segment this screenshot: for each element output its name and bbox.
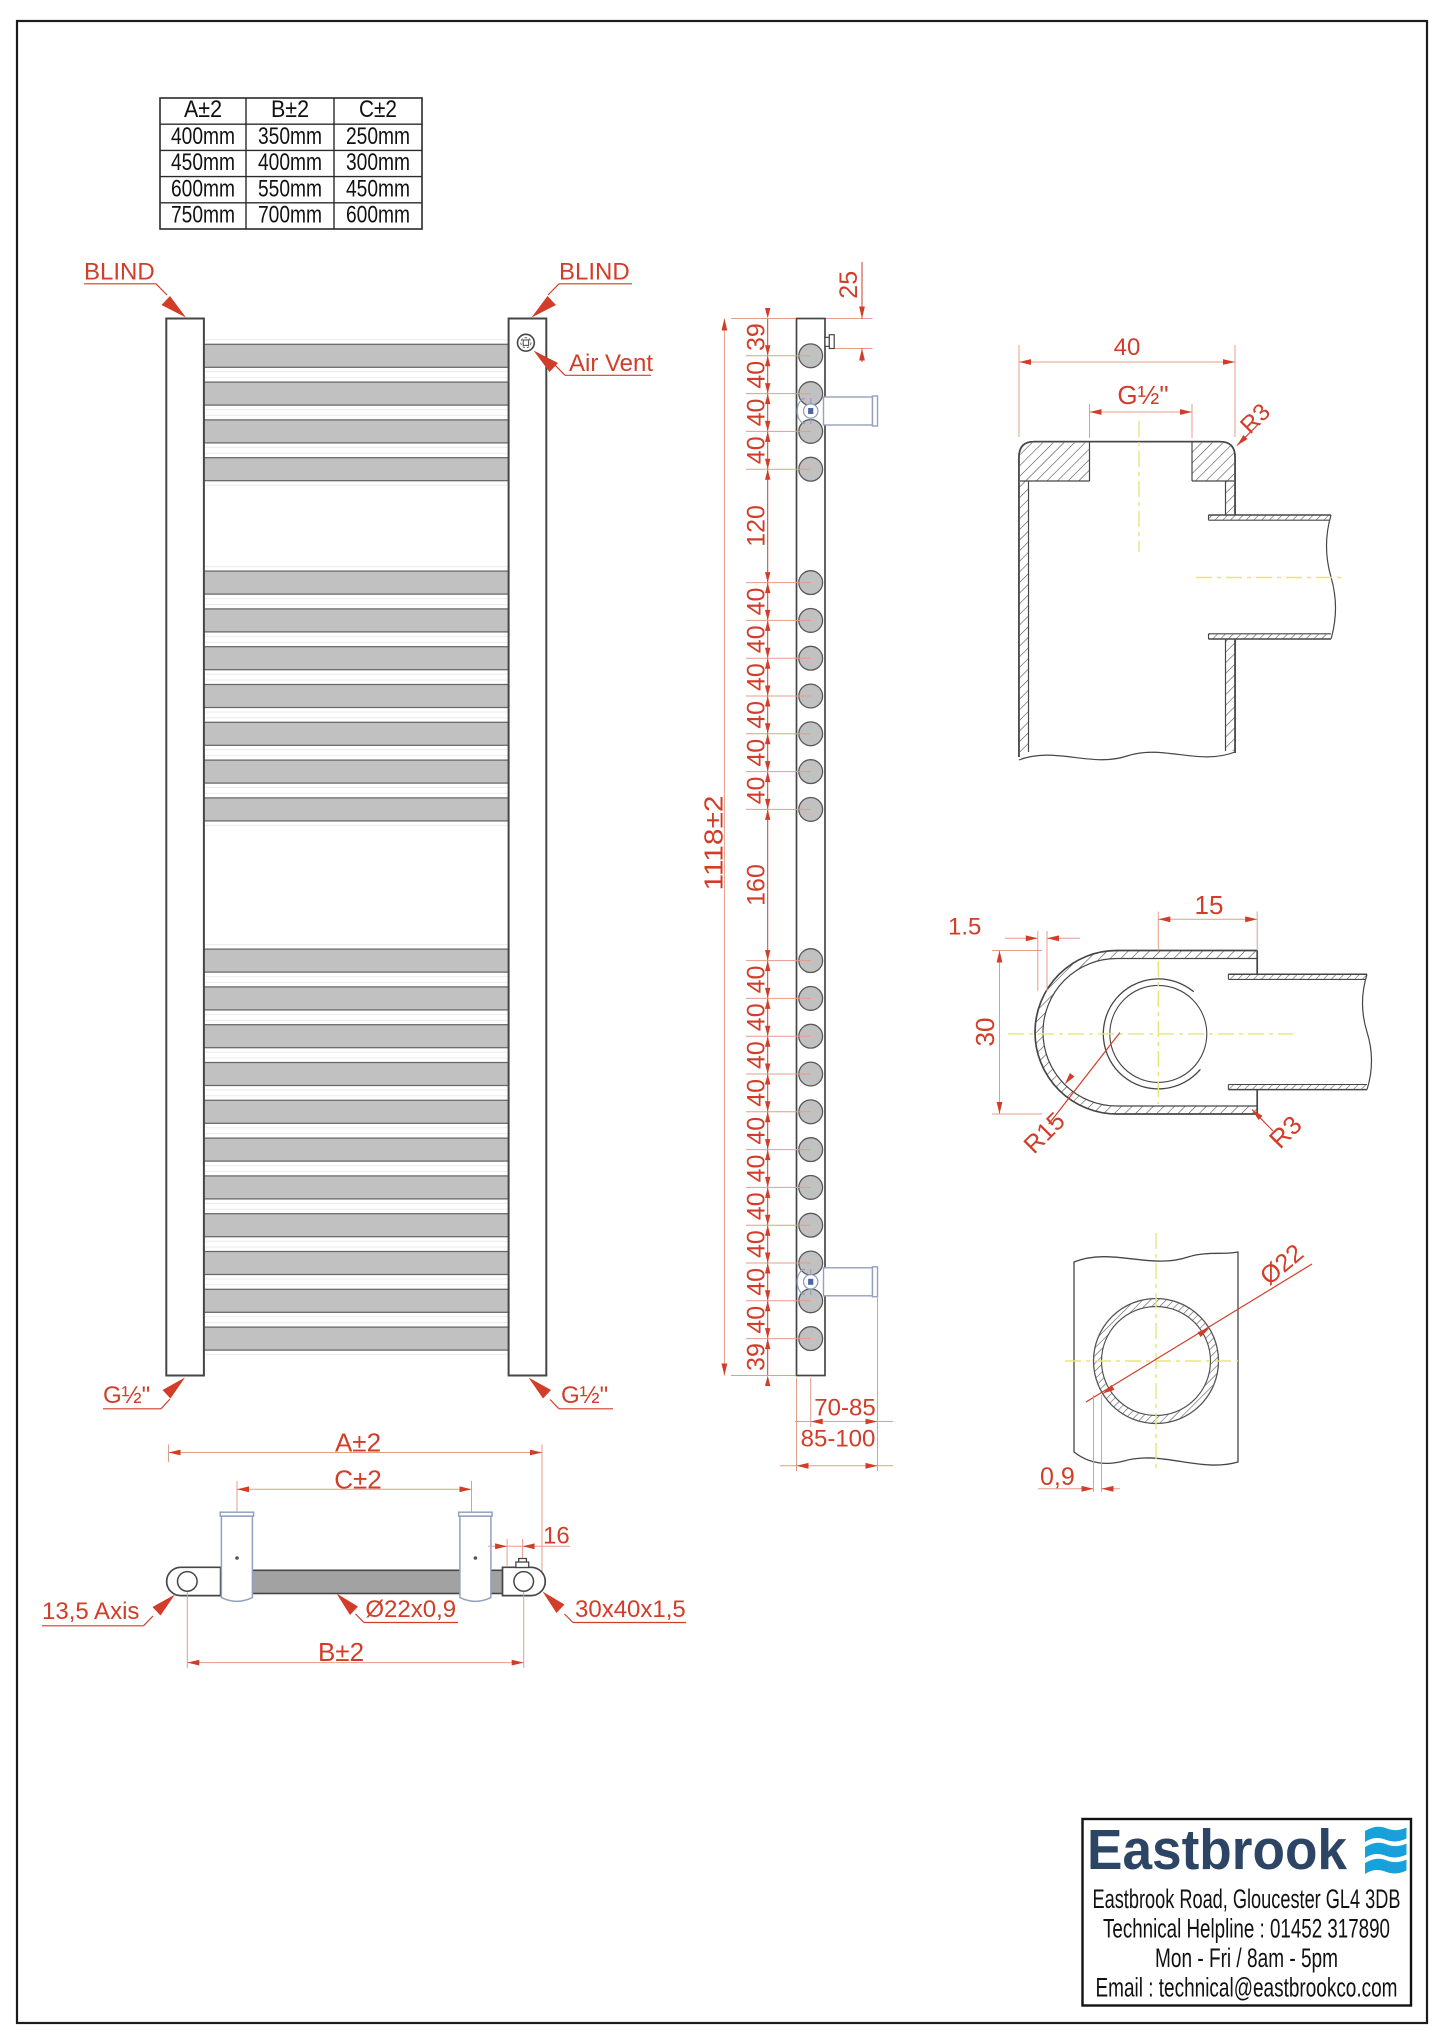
- svg-text:40: 40: [743, 1230, 771, 1258]
- svg-text:A±2: A±2: [184, 96, 222, 123]
- svg-text:13,5 Axis: 13,5 Axis: [42, 1598, 139, 1625]
- svg-text:350mm: 350mm: [258, 123, 322, 150]
- svg-text:39: 39: [743, 323, 771, 351]
- svg-text:40: 40: [743, 1268, 771, 1296]
- svg-text:40: 40: [743, 966, 771, 994]
- svg-text:Air Vent: Air Vent: [569, 350, 653, 377]
- svg-text:A±2: A±2: [335, 1428, 381, 1458]
- svg-text:Ø22x0,9: Ø22x0,9: [365, 1596, 456, 1623]
- svg-text:40: 40: [743, 777, 771, 805]
- svg-text:40: 40: [743, 1079, 771, 1107]
- svg-text:BLIND: BLIND: [84, 259, 155, 286]
- svg-text:250mm: 250mm: [346, 123, 410, 150]
- svg-text:70-85: 70-85: [814, 1395, 875, 1422]
- svg-text:700mm: 700mm: [258, 202, 322, 229]
- svg-text:B±2: B±2: [271, 96, 309, 123]
- svg-text:C±2: C±2: [334, 1465, 382, 1495]
- svg-text:1118±2: 1118±2: [699, 796, 729, 891]
- svg-text:120: 120: [743, 505, 771, 547]
- svg-text:450mm: 450mm: [171, 149, 235, 176]
- svg-text:15: 15: [1195, 890, 1224, 920]
- svg-text:400mm: 400mm: [171, 123, 235, 150]
- svg-text:300mm: 300mm: [346, 149, 410, 176]
- svg-text:40: 40: [743, 701, 771, 729]
- svg-text:Technical Helpline : 01452 317: Technical Helpline : 01452 317890: [1103, 1914, 1390, 1944]
- svg-text:450mm: 450mm: [346, 175, 410, 202]
- svg-text:40: 40: [743, 739, 771, 767]
- svg-text:40: 40: [743, 436, 771, 464]
- svg-text:40: 40: [743, 1192, 771, 1220]
- svg-text:C±2: C±2: [359, 96, 397, 123]
- svg-text:550mm: 550mm: [258, 175, 322, 202]
- svg-text:1.5: 1.5: [948, 914, 981, 941]
- svg-text:40: 40: [743, 663, 771, 691]
- svg-text:40: 40: [743, 625, 771, 653]
- svg-text:39: 39: [743, 1343, 771, 1371]
- svg-text:BLIND: BLIND: [559, 259, 630, 286]
- svg-text:G½": G½": [103, 1382, 150, 1409]
- svg-text:B±2: B±2: [318, 1637, 364, 1667]
- svg-text:0,9: 0,9: [1040, 1463, 1075, 1491]
- svg-text:40: 40: [743, 1003, 771, 1031]
- svg-text:25: 25: [835, 271, 863, 299]
- svg-text:600mm: 600mm: [346, 202, 410, 229]
- svg-text:Eastbrook Road, Gloucester GL4: Eastbrook Road, Gloucester GL4 3DB: [1093, 1884, 1401, 1914]
- svg-text:40: 40: [743, 1155, 771, 1183]
- svg-text:40: 40: [743, 361, 771, 389]
- svg-text:160: 160: [743, 864, 771, 906]
- svg-text:G½": G½": [561, 1382, 608, 1409]
- svg-text:40: 40: [743, 399, 771, 427]
- svg-text:40: 40: [743, 588, 771, 616]
- svg-text:G½": G½": [1117, 380, 1168, 410]
- svg-text:30x40x1,5: 30x40x1,5: [575, 1596, 686, 1623]
- svg-text:600mm: 600mm: [171, 175, 235, 202]
- svg-text:750mm: 750mm: [171, 202, 235, 229]
- svg-text:16: 16: [543, 1523, 570, 1550]
- svg-text:Email : technical@eastbrookco.: Email : technical@eastbrookco.com: [1096, 1973, 1398, 2003]
- svg-text:Mon - Fri / 8am - 5pm: Mon - Fri / 8am - 5pm: [1155, 1943, 1338, 1973]
- svg-text:40: 40: [743, 1041, 771, 1069]
- svg-text:40: 40: [1114, 334, 1141, 361]
- svg-text:400mm: 400mm: [258, 149, 322, 176]
- svg-text:Eastbrook: Eastbrook: [1087, 1818, 1347, 1882]
- svg-text:30: 30: [970, 1018, 1000, 1047]
- svg-text:40: 40: [743, 1117, 771, 1145]
- svg-text:85-100: 85-100: [801, 1426, 876, 1453]
- svg-text:40: 40: [743, 1306, 771, 1334]
